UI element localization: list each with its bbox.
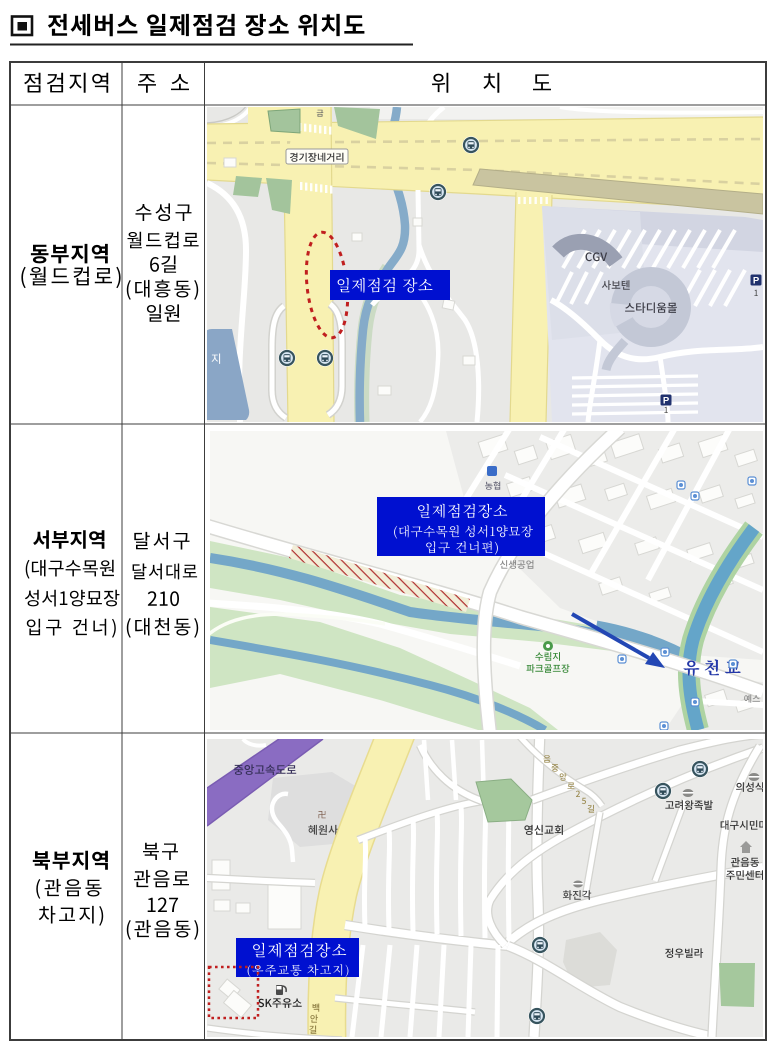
svg-text:P: P: [753, 276, 760, 287]
svg-text:P: P: [663, 396, 670, 407]
